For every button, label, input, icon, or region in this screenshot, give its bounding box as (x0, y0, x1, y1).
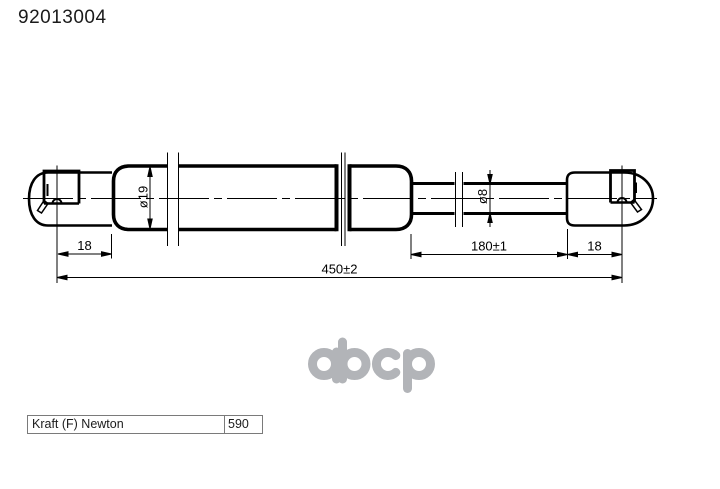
spec-force-label: Kraft (F) Newton (28, 416, 225, 433)
dimension-overall-length: 450±2 (57, 262, 622, 280)
cylinder-body (114, 153, 412, 247)
dim-label-overall-length: 450±2 (321, 262, 357, 277)
dimension-rod-diameter: ø8 (475, 170, 492, 227)
logo-letter-b-bowl (343, 353, 366, 376)
dim-label-rod-diameter: ø8 (475, 189, 490, 204)
dim-label-left-offset: 18 (77, 238, 91, 253)
left-eye-fitting (29, 166, 112, 284)
arrowhead-right (102, 252, 112, 256)
dim-label-right-offset: 18 (587, 239, 601, 254)
arrowhead-up (148, 167, 152, 177)
arrowhead-down (148, 219, 152, 229)
dim-label-extension-length: 180±1 (471, 239, 507, 254)
logo-letter-p-bowl (408, 353, 431, 376)
arrowhead-right (612, 252, 622, 256)
dim-label-body-diameter: ø19 (136, 186, 151, 208)
spec-force-value: 590 (225, 416, 262, 433)
left-clip-tab (38, 201, 49, 214)
arrowhead-left (568, 252, 578, 256)
arrowhead-left (58, 252, 68, 256)
right-eye-fitting (567, 166, 653, 284)
arrowhead-left (57, 275, 67, 279)
cylinder-right-cap (350, 166, 412, 230)
right-clip-tab (631, 200, 642, 213)
arrowhead-right (558, 252, 568, 256)
dimension-extension-length: 180±1 (411, 239, 568, 257)
spec-table: Kraft (F) Newton 590 (27, 415, 263, 434)
arrowhead-left (411, 252, 421, 256)
rod-break-marks (456, 172, 463, 227)
logo-letter-c (376, 353, 395, 376)
arrowhead-right (612, 275, 622, 279)
dimension-left-eye-offset: 18 (58, 238, 112, 256)
dimension-right-eye-offset: 18 (568, 239, 623, 257)
abcp-watermark-logo (313, 342, 431, 389)
drawing-page: 92013004 (0, 0, 720, 489)
dimension-body-diameter: ø19 (136, 167, 153, 230)
